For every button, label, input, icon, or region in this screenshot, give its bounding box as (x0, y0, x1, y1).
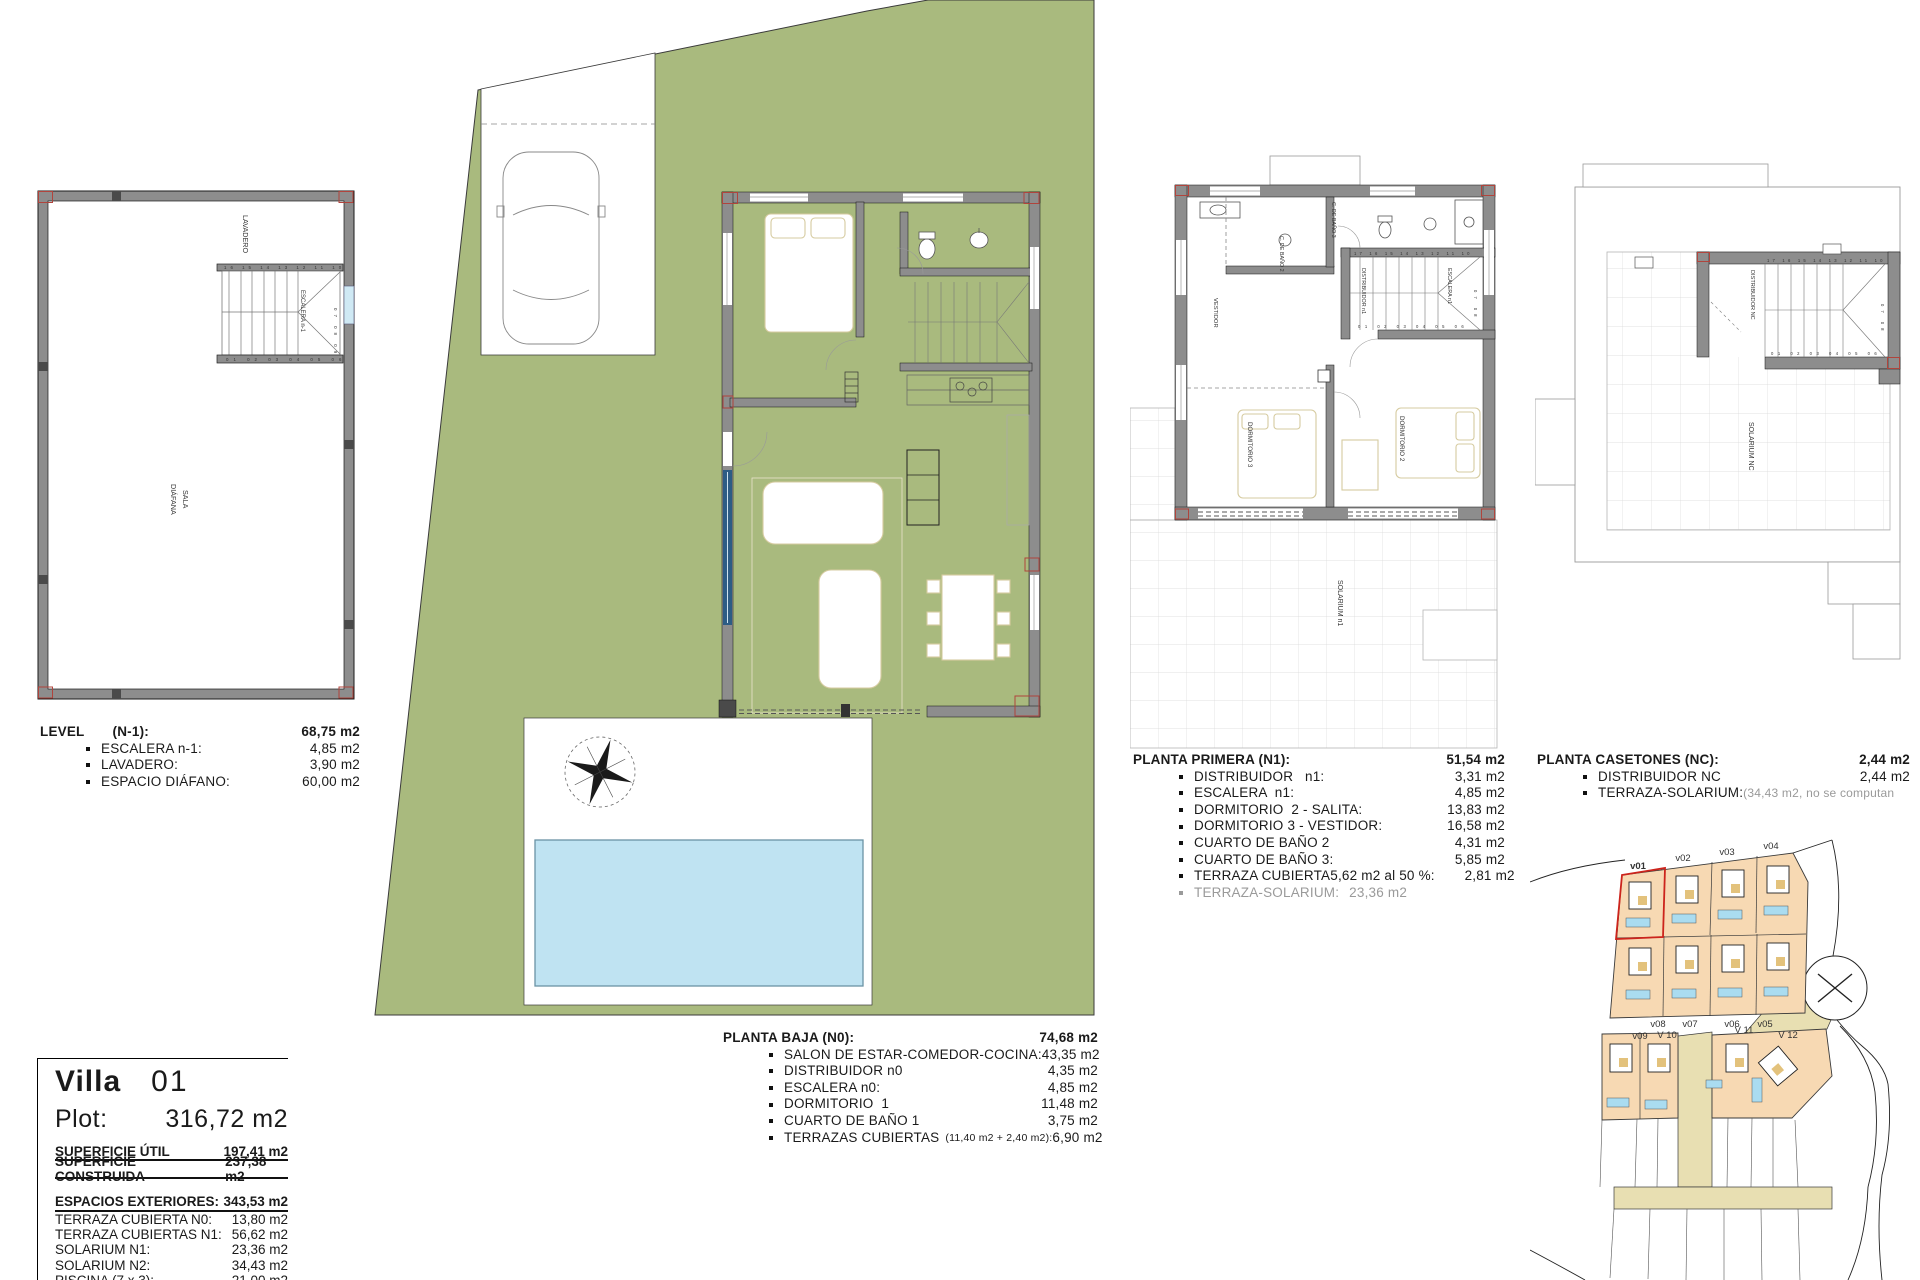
planta-baja-total: 74,68 m2 (1039, 1030, 1098, 1047)
pp-item: DISTRIBUIDOR n1: 3,31 m2 (1179, 769, 1505, 786)
stair-numbers-top: 16 15 14 13 12 11 10 (224, 265, 345, 270)
room-label-solarium-nc: SOLARIUM NC (1747, 422, 1754, 471)
stair-numbers-bottom: 01 02 03 04 05 06 (226, 357, 346, 362)
pb-item: DISTRIBUIDOR n0 4,35 m2 (769, 1063, 1098, 1080)
level-n-1-summary: LEVEL (N-1): 68,75 m2 ESCALERA n-1: 4,85… (40, 724, 360, 790)
room-label-bano3: C. DE BAÑO 3 (1330, 202, 1337, 238)
villa-info-panel: Villa 01 Plot: 316,72 m2 SUPERFICIE ÚTIL… (37, 1058, 288, 1280)
level-item: ESPACIO DIÁFANO: 60,00 m2 (86, 774, 360, 791)
radiator (1318, 370, 1330, 382)
planta-baja-summary: PLANTA BAJA (N0): 74,68 m2 SALON DE ESTA… (723, 1030, 1098, 1146)
label-v05: v05 (1757, 1019, 1772, 1030)
roundabout (1803, 956, 1867, 1020)
pp-item: TERRAZA CUBIERTA 5,62 m2 al 50 %: 2,81 m… (1179, 868, 1505, 885)
label-v07: v07 (1682, 1019, 1697, 1030)
stair-numbers-side: 07 08 (1473, 290, 1478, 320)
label-v09: v09 (1632, 1031, 1647, 1042)
parking-area (481, 53, 655, 355)
level-item: LAVADERO: 3,90 m2 (86, 757, 360, 774)
label-v10: V 10 (1657, 1030, 1677, 1041)
pp-item: ESCALERA n1: 4,85 m2 (1179, 785, 1505, 802)
level-item: ESCALERA n-1: 4,85 m2 (86, 741, 360, 758)
pp-item: DORMITORIO 3 - VESTIDOR: 16,58 m2 (1179, 818, 1505, 835)
label-v08: v08 (1650, 1019, 1665, 1030)
side-outline (1535, 399, 1575, 485)
casetones-plan: 17 16 15 14 13 12 11 10 01 02 03 04 05 0… (1535, 152, 1920, 752)
bed-icon (1396, 408, 1480, 478)
stair-numbers-side: 07 08 (1880, 304, 1885, 334)
villa-name: Villa (55, 1065, 121, 1099)
label-v01: v01 (1630, 861, 1647, 872)
planta-primera-title-row: PLANTA PRIMERA (N1): 51,54 m2 (1133, 752, 1505, 769)
room-label-lavadero: LAVADERO (241, 215, 250, 253)
room-label-distribuidor-nc: DISTRIBUIDOR NC (1749, 270, 1755, 320)
bed-icon (765, 214, 853, 332)
planta-primera-summary: PLANTA PRIMERA (N1): 51,54 m2 DISTRIBUID… (1133, 752, 1505, 901)
villa-number: 01 (151, 1065, 188, 1099)
pp-item-muted: TERRAZA-SOLARIUM: 23,36 m2 (1179, 885, 1505, 902)
label-v11: V 11 (1735, 1025, 1754, 1036)
lower-outlines (1828, 562, 1900, 659)
pp-item: CUARTO DE BAÑO 2 4,31 m2 (1179, 835, 1505, 852)
level-total: 68,75 m2 (301, 724, 360, 741)
planta-baja-title-row: PLANTA BAJA (N0): 74,68 m2 (723, 1030, 1098, 1047)
dining-table-icon (927, 575, 1010, 660)
caseton-outline (1270, 156, 1360, 185)
level-title-row: LEVEL (N-1): 68,75 m2 (40, 724, 360, 741)
exterior-item: TERRAZA CUBIERTA N0: 13,80 m2 (55, 1212, 288, 1227)
exterior-item: PISCINA (7 x 3): 21,00 m2 (55, 1273, 288, 1280)
pb-item: ESCALERA n0: 4,85 m2 (769, 1080, 1098, 1097)
superficie-construida-row: SUPERFICIE CONSTRUIDA 237,38 m2 (55, 1161, 288, 1179)
pb-item: DORMITORIO 1 11,48 m2 (769, 1096, 1098, 1113)
sink-icon (970, 232, 988, 248)
planta-casetones-summary: PLANTA CASETONES (NC): 2,44 m2 DISTRIBUI… (1537, 752, 1910, 802)
plot-label: Plot: (55, 1105, 108, 1134)
planta-primera-total: 51,54 m2 (1446, 752, 1505, 769)
level-code: (N-1): (113, 724, 149, 741)
label-v02: v02 (1675, 853, 1690, 864)
sink-icon (1210, 205, 1226, 215)
planta-casetones-total: 2,44 m2 (1859, 752, 1910, 769)
plot-row: Plot: 316,72 m2 (55, 1105, 288, 1134)
site-plan-ground-floor (367, 0, 1102, 1022)
room-label-solarium: SOLARIUM n1 (1336, 580, 1343, 626)
stair-numbers-bottom: 01 02 03 04 05 06 (1358, 324, 1468, 329)
toilet-icon (1379, 222, 1391, 238)
planta-casetones-title-row: PLANTA CASETONES (NC): 2,44 m2 (1537, 752, 1910, 769)
room-label-escalera: ESCALERA n-1 (299, 290, 305, 333)
pp-item: DORMITORIO 2 - SALITA: 13,83 m2 (1179, 802, 1505, 819)
lower-left-cluster (1602, 1033, 1678, 1120)
room-label-sala-1: SALA (181, 490, 190, 509)
level-title: LEVEL (40, 724, 85, 741)
basement-floor-plan: 16 15 14 13 12 11 10 01 02 03 04 05 06 0… (37, 190, 357, 702)
terrace (524, 718, 872, 1005)
first-floor-plan: 17 16 15 14 13 12 11 10 01 02 03 04 05 0… (1130, 140, 1515, 755)
stair-numbers-top: 17 16 15 14 13 12 11 10 (1354, 251, 1473, 256)
sink-icon (1424, 218, 1436, 230)
swimming-pool (535, 840, 863, 986)
pc-item: TERRAZA-SOLARIUM: (34,43 m2, no se compu… (1583, 785, 1910, 802)
pb-item: SALON DE ESTAR-COMEDOR-COCINA: 43,35 m2 (769, 1047, 1098, 1064)
pb-item: TERRAZAS CUBIERTAS (11,40 m2 + 2,40 m2):… (769, 1130, 1098, 1147)
room-label-sala-2: DIÁFANA (169, 484, 178, 515)
room-label-dorm3: DORMITORIO 3 (1246, 422, 1253, 468)
stair-numbers-top: 17 16 15 14 13 12 11 10 (1767, 258, 1886, 263)
site-map: v01 v02 v03 v04 v08 v07 v06 v05 v09 V 10… (1530, 830, 1920, 1280)
plot-value: 316,72 m2 (165, 1105, 288, 1134)
label-v04: v04 (1763, 841, 1778, 852)
pp-item: CUARTO DE BAÑO 3: 5,85 m2 (1179, 852, 1505, 869)
planta-primera-title: PLANTA PRIMERA (N1): (1133, 752, 1290, 769)
planta-casetones-title: PLANTA CASETONES (NC): (1537, 752, 1719, 769)
room-label-dorm2: DORMITORIO 2 (1398, 416, 1405, 462)
caseton-outline (1583, 164, 1768, 187)
villa-title: Villa 01 (55, 1065, 288, 1099)
label-v03: v03 (1719, 847, 1734, 858)
espacios-exteriores-row: ESPACIOS EXTERIORES: 343,53 m2 (55, 1193, 288, 1211)
room-label-distribuidor: DISTRIBUIDOR n1 (1360, 268, 1366, 314)
pc-item: DISTRIBUIDOR NC 2,44 m2 (1583, 769, 1910, 786)
exterior-item: SOLARIUM N1: 23,36 m2 (55, 1242, 288, 1257)
label-v12: V 12 (1778, 1030, 1798, 1041)
planta-baja-title: PLANTA BAJA (N0): (723, 1030, 854, 1047)
stair-numbers-bottom: 01 02 03 04 05 06 (1771, 351, 1881, 356)
room-label-bano2: C. DE BAÑO 2 (1278, 236, 1285, 272)
toilet-icon (919, 239, 935, 259)
upper-plot-cluster (1610, 853, 1808, 1018)
exterior-item: TERRAZA CUBIERTAS N1: 56,62 m2 (55, 1227, 288, 1242)
plan-sheet: 16 15 14 13 12 11 10 01 02 03 04 05 06 0… (0, 0, 1920, 1280)
room-label-vestidor: VESTIDOR (1212, 298, 1218, 328)
stair-numbers-side: 07 08 09 (333, 308, 338, 357)
exterior-item: SOLARIUM N2: 34,43 m2 (55, 1257, 288, 1272)
lower-right-cluster (1706, 1029, 1832, 1118)
pb-item: CUARTO DE BAÑO 1 3,75 m2 (769, 1113, 1098, 1130)
room-label-escalera: ESCALERA n1 (1446, 268, 1452, 304)
